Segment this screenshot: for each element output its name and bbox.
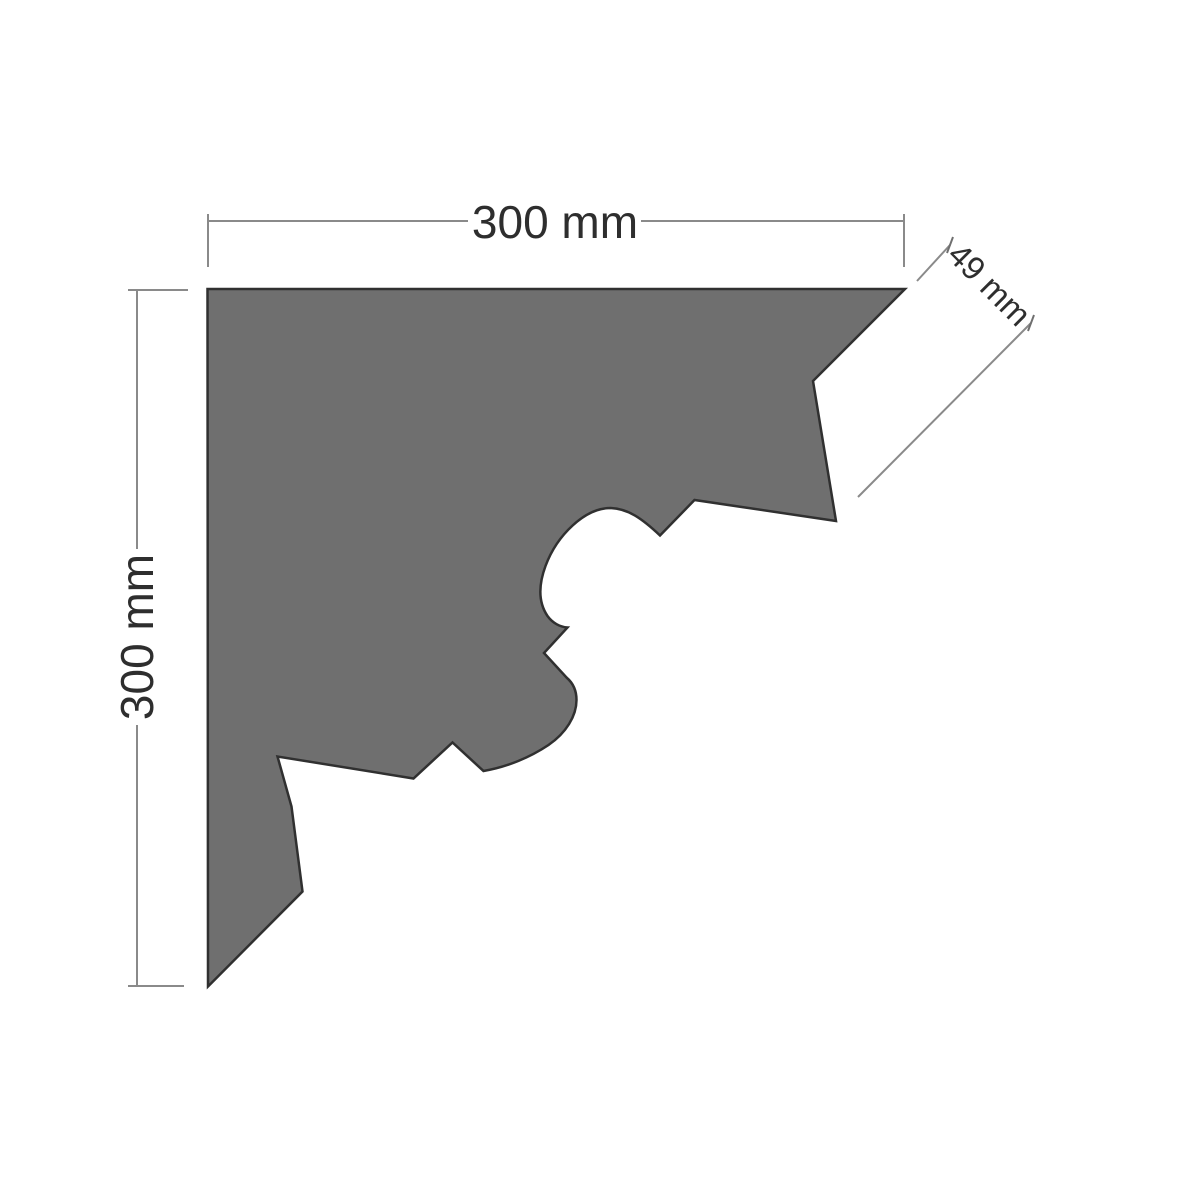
dimension-left-height-label: 300 mm [111,554,163,720]
dimension-fascia-ext-lower [858,323,1031,497]
drawing-canvas: 300 mm 300 mm 49 mm [0,0,1200,1200]
cornice-profile-shape [208,289,906,987]
dimension-fascia-drop-label: 49 mm [941,236,1038,333]
dimension-fascia-drop: 49 mm [858,236,1038,497]
dimension-top-width-label: 300 mm [472,196,638,248]
dimension-top-width: 300 mm [208,196,904,267]
cornice-profile-diagram: 300 mm 300 mm 49 mm [0,0,1200,1200]
dimension-left-height: 300 mm [111,290,188,986]
dimension-fascia-tick-lower [1028,315,1034,331]
